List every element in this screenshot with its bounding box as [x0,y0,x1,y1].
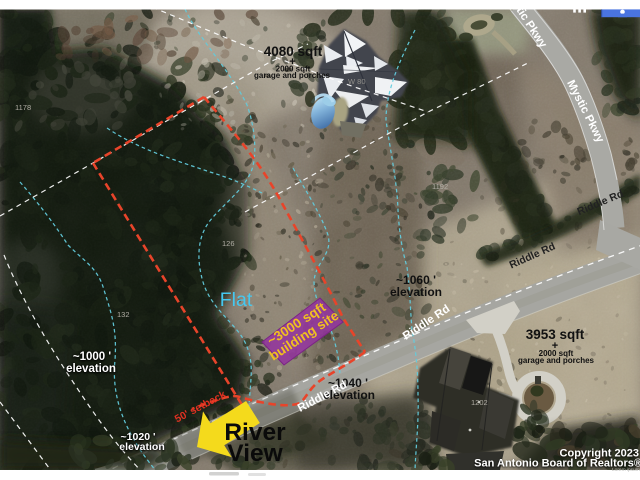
svg-text:View: View [227,440,283,467]
svg-text:1178: 1178 [15,103,31,112]
svg-text:elevation: elevation [390,285,442,299]
svg-text:garage and porches: garage and porches [518,356,595,365]
svg-text:1202: 1202 [471,398,488,407]
svg-text:Flat: Flat [220,289,253,311]
svg-text:elevation: elevation [119,441,165,453]
svg-text:elevation: elevation [66,363,116,375]
svg-text:126: 126 [222,239,235,248]
svg-text:garage and porches: garage and porches [254,71,331,80]
svg-text:1192: 1192 [432,182,448,191]
svg-text:W 80: W 80 [348,77,366,86]
svg-text:~1000 ': ~1000 ' [73,351,111,363]
svg-text:132: 132 [117,310,130,319]
svg-text:Lorem ipsum: Lorem ipsum [612,467,640,473]
